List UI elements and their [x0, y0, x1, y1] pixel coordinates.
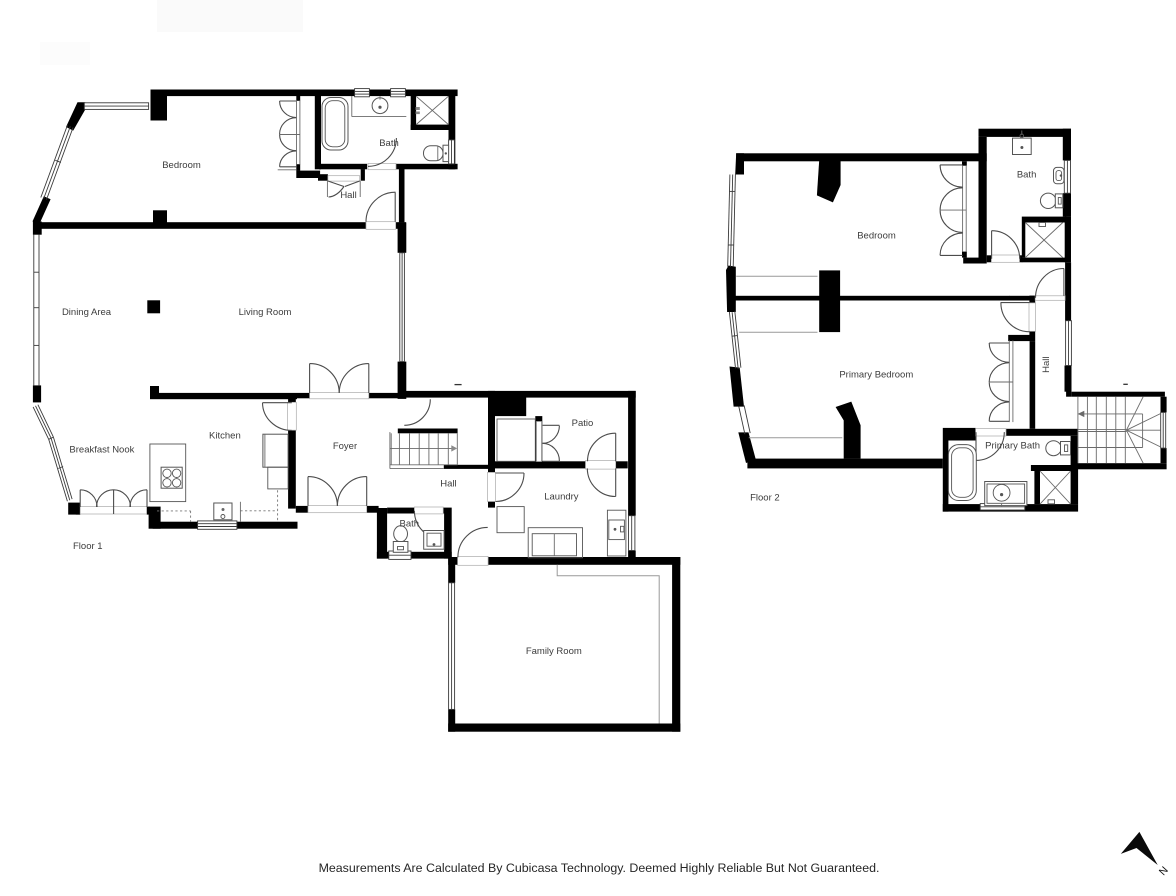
- svg-text:Bath: Bath: [400, 518, 420, 529]
- svg-text:Primary Bath: Primary Bath: [985, 440, 1040, 451]
- svg-text:Kitchen: Kitchen: [209, 430, 241, 441]
- svg-text:Foyer: Foyer: [333, 441, 357, 452]
- svg-text:Floor 2: Floor 2: [750, 493, 780, 504]
- svg-text:Laundry: Laundry: [544, 492, 579, 503]
- svg-text:Floor 1: Floor 1: [73, 541, 103, 552]
- svg-text:Measurements Are Calculated By: Measurements Are Calculated By Cubicasa …: [319, 861, 880, 875]
- svg-text:Dining Area: Dining Area: [62, 307, 112, 318]
- svg-text:Hall: Hall: [340, 190, 356, 201]
- svg-text:Family Room: Family Room: [526, 646, 582, 657]
- svg-text:Patio: Patio: [572, 418, 594, 429]
- svg-text:Hall: Hall: [1041, 357, 1052, 373]
- svg-text:Bath: Bath: [379, 138, 399, 149]
- svg-text:Primary Bedroom: Primary Bedroom: [839, 370, 913, 381]
- svg-text:Hall: Hall: [440, 478, 456, 489]
- svg-text:Bedroom: Bedroom: [162, 160, 201, 171]
- svg-text:Bath: Bath: [1017, 169, 1037, 180]
- svg-text:Living Room: Living Room: [239, 307, 292, 318]
- svg-text:Breakfast Nook: Breakfast Nook: [69, 444, 134, 455]
- svg-text:Bedroom: Bedroom: [857, 230, 896, 241]
